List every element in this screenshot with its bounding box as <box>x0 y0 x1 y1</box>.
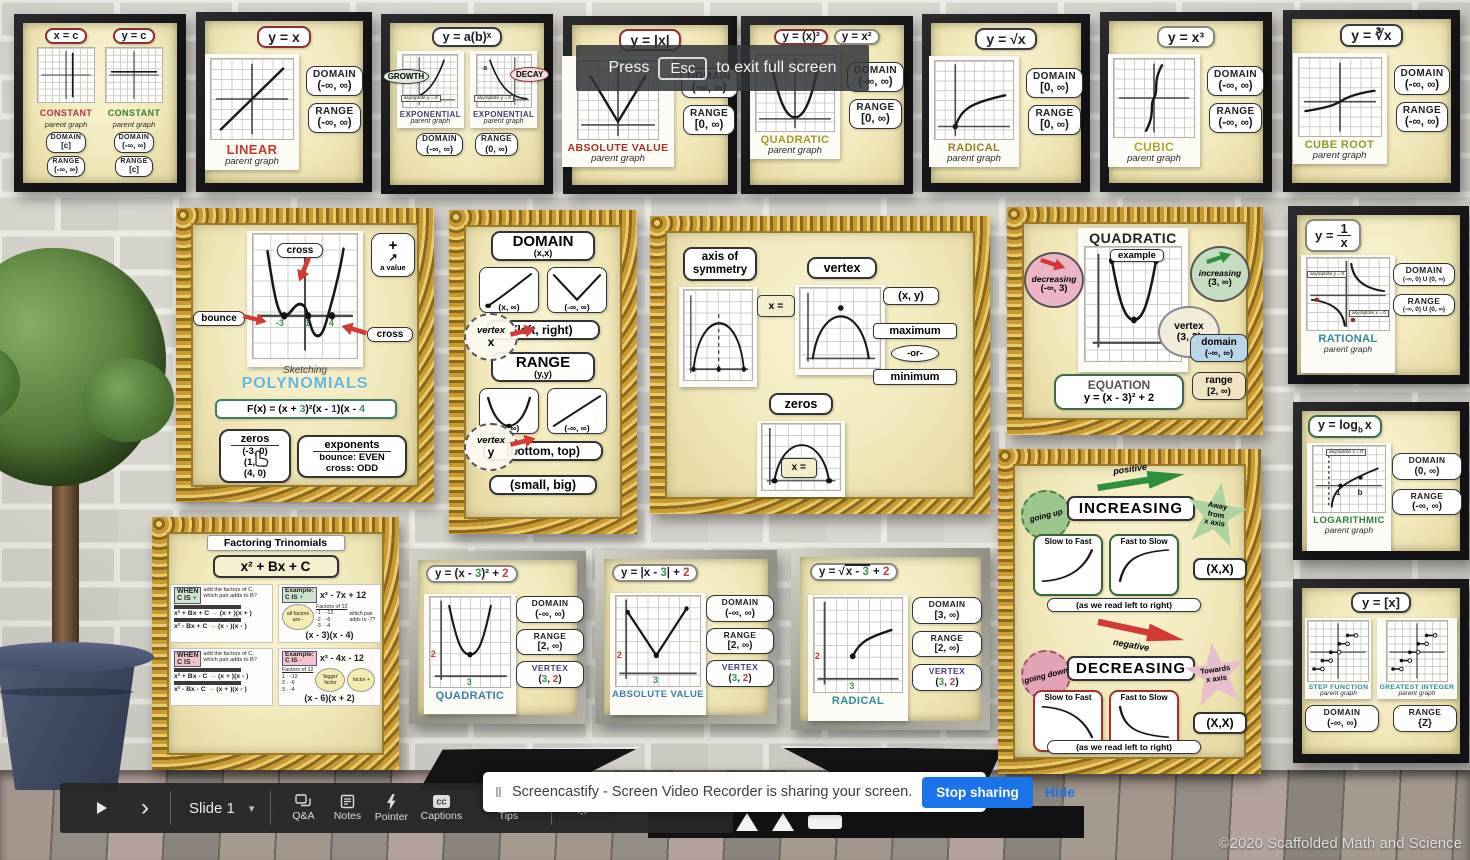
or-ellipse: -or- <box>891 345 939 362</box>
fullscreen-exit-toast: Press Esc to exit full screen <box>576 45 869 91</box>
eq-part: + <box>870 566 883 578</box>
eq-sub: b <box>1358 426 1363 435</box>
asymptote-tag: asymptote y = 0 <box>1307 271 1347 278</box>
mat: y = |x - 3| + 2 2 3 ABSOLUTE VALUE DOMAI… <box>604 559 768 715</box>
hand-cursor-icon <box>249 443 269 467</box>
star-text: Towardsx axis <box>1200 664 1232 685</box>
parent-graph-subtitle: parent graph <box>45 120 88 129</box>
vertex-x: x <box>488 336 495 348</box>
equation-card: y = logbx <box>1308 415 1382 438</box>
graph-svg <box>684 290 752 380</box>
copyright-text: ©2020 Scaffolded Math and Science <box>1150 835 1462 852</box>
domain-card: DOMAIN(-∞, 0) U (0, ∞) <box>1393 263 1455 286</box>
example-chip: Example:C IS - <box>282 651 317 667</box>
domain-card: DOMAIN(-∞, ∞) <box>306 66 363 96</box>
graph-svg <box>1299 58 1381 136</box>
range-mini-card: (-∞, ∞) <box>547 388 607 434</box>
polynomials-title: POLYNOMIALS <box>191 375 419 393</box>
factor-list: Factors of 121 · -122 · -63 · -4 <box>282 667 313 693</box>
equation-card: EQUATION y = (x - 3)² + 2 <box>1054 374 1184 410</box>
graph-svg <box>38 48 94 102</box>
parent-graph-subtitle: parent graph <box>947 153 1001 164</box>
dark-strip <box>174 668 241 672</box>
press-text: Press <box>609 59 650 77</box>
b-label: b <box>1358 488 1363 497</box>
graph-svg <box>814 598 902 692</box>
notes-button[interactable]: Notes <box>325 794 369 822</box>
y-mark: 2 <box>617 650 622 660</box>
decreasing-circle: decreasing (-∞, 3) <box>1024 252 1084 308</box>
transform-poster: 2 3 ABSOLUTE VALUE <box>610 593 706 715</box>
transform-poster: 2 3 RADICAL <box>808 595 908 721</box>
mat: y = 1 x asymptote y = 0 asymptote x = 0 … <box>1297 215 1460 375</box>
mat: y = logbx asymptote x = 0 1 b LOGARITHMI… <box>1302 411 1460 551</box>
frame-transform-radical: y = √x - 3 + 2 2 3 RADICAL DOMAIN[3, ∞) … <box>791 548 990 730</box>
plant-pot-band <box>0 688 134 696</box>
parent-graph-subtitle: parent graph <box>1325 525 1373 535</box>
asymptote-tag: asymptote y = 0 <box>474 95 514 102</box>
equation-card: x = c <box>45 28 88 44</box>
pointer-button[interactable]: Pointer <box>369 794 413 823</box>
increasing-circle: increasing (3, ∞) <box>1190 246 1250 302</box>
mat: x = c CONSTANT parent graph DOMAIN[c] RA… <box>23 23 177 183</box>
vertex-value-card: (x, y) <box>883 287 939 305</box>
graph-svg <box>106 48 162 102</box>
x-mark: 3 <box>849 681 854 691</box>
card-title: Fast to Slow <box>1111 693 1177 702</box>
plus-a-value-card: + ↗ a value <box>371 233 415 277</box>
domain-card: DOMAIN[c] <box>46 132 87 153</box>
sharing-message: Screencastify - Screen Video Recorder is… <box>512 784 912 800</box>
parent-graph-subtitle: parent graph <box>591 153 645 164</box>
mat: axis of symmetry x = vertex (x, y) maxim… <box>665 231 975 499</box>
linear-graph <box>210 58 294 140</box>
range-card: RANGE(-∞, ∞) <box>308 103 360 133</box>
virtual-math-classroom: { "labels": {"domain":"DOMAIN","range":"… <box>0 0 1470 860</box>
asymptote-tag: asymptote x = 0 <box>1349 310 1389 317</box>
dark-strip <box>174 618 241 622</box>
frame-polynomials: -3 1 4 bounce cross cross + ↗ a value Sk… <box>176 208 434 502</box>
equation-label: EQUATION <box>1056 378 1182 392</box>
range-sub: (y,y) <box>493 370 593 379</box>
domain-title-card: DOMAIN (x,x) <box>491 231 595 261</box>
pennant-triangle-icon <box>772 813 794 831</box>
poster-title: QUADRATIC <box>436 690 505 702</box>
esc-key: Esc <box>658 57 707 80</box>
qa-label: Q&A <box>292 810 314 822</box>
qa-button[interactable]: Q&A <box>281 794 325 822</box>
curve-svg <box>1114 546 1174 586</box>
cube-root-graph <box>1298 57 1382 137</box>
equation-card: y = x <box>257 26 311 48</box>
eq-part: y = |x - <box>621 567 660 579</box>
read-note: (as we read left to right) <box>1047 598 1201 612</box>
graph-svg <box>1387 621 1447 681</box>
range-card: range [2, ∞) <box>1192 372 1246 400</box>
decay-poster: a asymptote y = 0 DECAY EXPONENTIAL pare… <box>470 51 537 128</box>
equation-card: y = ∛x <box>1340 24 1402 47</box>
stop-sharing-button[interactable]: Stop sharing <box>922 777 1033 808</box>
frame-radical: y = √x RADICAL parent graph DOMAIN[0, ∞)… <box>922 14 1090 192</box>
card-title: Fast to Slow <box>1111 537 1177 546</box>
y-mark: 2 <box>815 651 820 661</box>
parent-graph-poster: CUBIC parent graph <box>1108 54 1200 167</box>
equation-card: y = a(b)ˣ <box>432 27 503 47</box>
xx-card: (X,X) <box>1193 712 1247 734</box>
graph-svg <box>800 288 880 368</box>
range-value: [2, ∞) <box>1193 387 1245 398</box>
xx-card: (X,X) <box>1193 558 1247 580</box>
axis-line2: symmetry <box>685 264 755 277</box>
mat: y = √x - 3 + 2 2 3 RADICAL DOMAIN[3, ∞) … <box>800 557 981 721</box>
example-tag: example <box>1110 249 1164 262</box>
when-c-positive-panel: WHENC IS + add the factors of C, which p… <box>170 584 273 643</box>
parent-graph-subtitle: parent graph <box>225 156 279 167</box>
vertex-card: vertex <box>807 257 877 279</box>
vertex-poster <box>795 285 885 375</box>
mat: -3 1 4 bounce cross cross + ↗ a value Sk… <box>191 223 419 487</box>
domain-card: DOMAIN(-∞, ∞) <box>1207 66 1264 96</box>
vertex-card: VERTEX(3, 2) <box>912 664 982 691</box>
parent-graph-title: LINEAR <box>227 142 278 157</box>
vertex-x-circle: vertex x <box>464 313 518 361</box>
example-chip: Example:C IS + <box>282 587 317 603</box>
x-mark: 3 <box>653 675 658 685</box>
qa-icon <box>295 794 312 809</box>
equation-card: y = |x - 3| + 2 <box>612 564 698 582</box>
green-arrow-icon <box>1205 248 1233 267</box>
rule-row: x² + Bx + C → (x + )(x + ) <box>174 610 269 617</box>
mat: Factoring Trinomials x² + Bx + C WHENC I… <box>167 532 384 755</box>
frame-quadratic-features: axis of symmetry x = vertex (x, y) maxim… <box>650 216 990 514</box>
exponents-header: exponents <box>313 439 391 452</box>
domain-title: DOMAIN <box>493 234 593 249</box>
trinomial-formula-card: x² + Bx + C <box>213 555 339 578</box>
bounce-value: EVEN <box>359 452 385 463</box>
radical-graph <box>934 60 1014 140</box>
equation-card: y = √x - 3 + 2 <box>810 563 898 581</box>
eq-part: 2 <box>683 567 689 579</box>
vertex-card: VERTEX(3, 2) <box>706 660 774 687</box>
play-icon <box>93 800 109 816</box>
all-negative-bubble: all factors are - <box>282 604 314 630</box>
axis-equation-card: x = <box>757 295 795 317</box>
parent-graph-poster: CUBE ROOT parent graph <box>1293 53 1387 164</box>
range-card: RANGE(0, ∞) <box>475 133 518 156</box>
parent-graph-title: CUBIC <box>1134 140 1174 154</box>
curve-svg <box>1038 546 1098 586</box>
axis-of-symmetry-card: axis of symmetry <box>683 247 757 281</box>
frame-factoring-trinomials: Factoring Trinomials x² + Bx + C WHENC I… <box>152 517 399 770</box>
parent-graph-subtitle: parent graph <box>484 118 524 125</box>
domain-card: DOMAIN(-∞, ∞) <box>1394 65 1451 95</box>
eq-part: )(x - <box>337 403 359 415</box>
example-eq: x² - 4x - 12 <box>320 653 364 663</box>
cross-label-top: cross <box>277 243 323 258</box>
zeros-graph: x = <box>761 423 841 491</box>
rule-row: x² - Bx - C → (x + )(x - ) <box>174 686 269 693</box>
frame-constant: x = c CONSTANT parent graph DOMAIN[c] RA… <box>14 14 186 192</box>
range-card: RANGE(-∞, ∞) <box>1396 102 1448 132</box>
card-title: Slow to Fast <box>1035 693 1101 702</box>
inc-slow-fast-card: Slow to Fast <box>1033 534 1103 596</box>
eq-part: | + <box>667 567 683 579</box>
mat: y = x³ CUBIC parent graph DOMAIN(-∞, ∞) … <box>1109 21 1263 183</box>
graph-svg <box>1313 446 1385 512</box>
frame-absolute-value: y = |x| ABSOLUTE VALUE parent graph DOMA… <box>563 16 737 194</box>
eq-part: 3 <box>862 566 868 578</box>
domain-card: DOMAIN(-∞, ∞) <box>706 595 774 622</box>
toolbar-divider <box>170 791 171 825</box>
constant-y-graph <box>105 47 163 103</box>
curve-svg <box>1038 702 1098 742</box>
small-big-card: (small, big) <box>489 475 597 495</box>
slide-selector-caret[interactable]: ▾ <box>243 802 261 815</box>
domain-card: domain (-∞, ∞) <box>1190 334 1248 362</box>
domain-range-col: DOMAIN(0, ∞) RANGE(-∞, ∞) <box>1392 453 1462 515</box>
axis-line1: axis of <box>685 251 755 264</box>
bigger-factor-bubble: 'bigger' factor <box>315 668 345 692</box>
info-col: DOMAIN(-∞, ∞) RANGE[2, ∞) VERTEX(3, 2) <box>706 595 774 687</box>
equation-card: y = 1 x <box>1305 219 1361 252</box>
maximum-card: maximum <box>873 323 957 339</box>
increasing-card: INCREASING <box>1067 496 1195 521</box>
curve-svg <box>1114 702 1174 742</box>
range-card: RANGE[0, ∞) <box>683 105 735 135</box>
range-title: RANGE <box>493 355 593 370</box>
eq-part: y = √ <box>819 566 845 578</box>
greatest-integer-graph <box>1386 620 1448 682</box>
drag-handle-icon[interactable]: ‖ <box>495 784 502 800</box>
eq-part: F(x) = (x + <box>247 403 300 415</box>
zeros-poster: x = <box>757 421 845 497</box>
domain-card: DOMAIN(-∞, ∞) <box>1305 705 1379 732</box>
factored-equation-card: F(x) = (x + 3)²(x - 1)(x - 4 <box>215 399 397 419</box>
range-card: RANGE[2, ∞) <box>912 631 982 658</box>
notes-label: Notes <box>334 810 361 822</box>
minimum-card: minimum <box>873 369 957 385</box>
slide-selector[interactable]: Slide 1 <box>181 800 243 817</box>
zero-label: -3 <box>276 318 284 328</box>
asymptote-tag: asymptote y = 0 <box>401 95 441 102</box>
frame-rational: y = 1 x asymptote y = 0 asymptote x = 0 … <box>1288 206 1469 384</box>
rule-text: add the factors of C, which pair adds to… <box>203 651 269 663</box>
rational-graph: asymptote y = 0 asymptote x = 0 <box>1306 257 1390 331</box>
poster-title: QUADRATIC <box>1089 230 1176 246</box>
range-card: RANGE(-∞, ∞) <box>47 156 84 177</box>
graph-svg <box>935 61 1013 139</box>
parent-graph-subtitle: parent graph <box>1320 690 1357 697</box>
pennant-block-icon <box>808 815 842 829</box>
range-card: RANGE[2, ∞) <box>706 628 774 655</box>
frame-exponential: y = a(b)ˣ ab asymptote y = 0 GROWTH EXPO… <box>381 14 553 194</box>
mat: y = a(b)ˣ ab asymptote y = 0 GROWTH EXPO… <box>390 23 544 185</box>
info-col: DOMAIN[3, ∞) RANGE[2, ∞) VERTEX(3, 2) <box>912 597 982 691</box>
logarithmic-poster: asymptote x = 0 1 b LOGARITHMIC parent g… <box>1307 443 1391 551</box>
a-label: a <box>483 65 487 72</box>
graph-svg <box>211 59 293 139</box>
vertex-card: VERTEX(3, 2) <box>516 661 584 688</box>
mat: y = x LINEAR parent graph DOMAIN(-∞, ∞) … <box>205 21 363 183</box>
next-slide-button[interactable]: › <box>130 796 160 820</box>
when-c-negative-panel: WHENC IS - add the factors of C, which p… <box>170 648 273 707</box>
constant-x-graph <box>37 47 95 103</box>
range-card: RANGE(-∞, 0) U (0, ∞) <box>1393 294 1455 317</box>
factoring-grid: WHENC IS + add the factors of C, which p… <box>170 584 381 706</box>
domain-card: DOMAIN(-∞, ∞) <box>114 132 155 153</box>
transform-poster: 2 3 QUADRATIC <box>424 594 516 714</box>
hide-banner-link[interactable]: Hide <box>1045 784 1075 800</box>
parent-graph-subtitle: parent graph <box>1127 153 1181 164</box>
decay-bubble: DECAY <box>510 67 549 82</box>
frame-domain-range: DOMAIN (x,x) (x, ∞) (-∞, ∞) (left, right… <box>449 210 637 534</box>
plus-sign: + <box>389 238 398 253</box>
positive-label: positive <box>1112 462 1147 477</box>
zeros-equation-card: x = <box>781 458 817 478</box>
cubic-graph <box>1113 58 1195 138</box>
inc-fast-slow-card: Fast to Slow <box>1109 534 1179 596</box>
growth-poster: ab asymptote y = 0 GROWTH EXPONENTIAL pa… <box>397 51 464 128</box>
mat: y = ∛x CUBE ROOT parent graph DOMAIN(-∞,… <box>1292 19 1451 183</box>
step-graph <box>1307 620 1369 682</box>
graph-svg <box>1308 621 1368 681</box>
answer: (x - 3)(x - 4) <box>282 630 377 640</box>
vertex-graph <box>799 287 881 369</box>
frame-step-function: y = [x] STEP FUNCTION parent graph GREAT… <box>1293 579 1469 763</box>
example-c-positive-panel: Example:C IS + x² - 7x + 12 all factors … <box>278 584 381 643</box>
range-card: RANGE[0, ∞) <box>849 99 901 129</box>
pointer-label: Pointer <box>375 811 408 823</box>
mini-value: (x, ∞) <box>480 302 538 312</box>
svg-text:CC: CC <box>436 800 446 807</box>
eq-part: y = (x - <box>435 568 475 580</box>
frame-transform-quadratic: y = (x - 3)² + 2 2 3 QUADRATIC DOMAIN(-∞… <box>409 551 586 724</box>
which-pair: which pair adds to -7? <box>349 611 375 623</box>
mat: y = (x - 3)² + 2 2 3 QUADRATIC DOMAIN(-∞… <box>418 560 577 715</box>
zero-value: (4, 0) <box>221 468 289 479</box>
equation-card: y = x³ <box>1157 26 1215 48</box>
graph-svg <box>762 424 840 490</box>
equation-card: y = (x)² <box>774 29 827 45</box>
frame-cubic: y = x³ CUBIC parent graph DOMAIN(-∞, ∞) … <box>1100 12 1272 192</box>
domain-word: domain <box>1191 337 1247 349</box>
parent-graph-poster: RADICAL parent graph <box>929 56 1019 167</box>
denominator: x <box>1340 236 1347 249</box>
parent-graph-poster: LINEAR parent graph <box>205 54 299 170</box>
equation-card: y = (x - 3)² + 2 <box>426 565 518 583</box>
parent-graph-subtitle: parent graph <box>113 120 156 129</box>
rule-text: add the factors of C, which pair adds to… <box>203 587 269 599</box>
axis-graph <box>683 289 753 381</box>
when-chip: WHENC IS - <box>174 651 201 668</box>
frame-linear: y = x LINEAR parent graph DOMAIN(-∞, ∞) … <box>196 12 372 192</box>
screen-sharing-banner: ‖ Screencastify - Screen Video Recorder … <box>483 772 986 812</box>
range-word: range <box>1193 375 1245 387</box>
asymptote-tag: asymptote x = 0 <box>1326 449 1366 456</box>
eq-part: )²(x - <box>305 403 331 415</box>
cross-key: cross: <box>326 463 355 474</box>
parent-graph-title: CONSTANT <box>108 108 161 118</box>
domain-mini-card: (x, ∞) <box>479 267 539 313</box>
rule-row: x² - Bx + C → (x - )(x - ) <box>174 623 269 630</box>
equation-card: y = [x] <box>1351 592 1411 613</box>
red-arrow-icon <box>1039 254 1067 273</box>
eq-part: )² + <box>481 568 502 580</box>
domain-card: DOMAIN[0, ∞) <box>1026 68 1083 98</box>
domain-card: DOMAIN[3, ∞) <box>912 597 982 624</box>
card-title: Slow to Fast <box>1035 537 1101 546</box>
bounce-label: bounce <box>193 311 245 326</box>
mini-value: (-∞, ∞) <box>548 423 606 433</box>
poster-title: ABSOLUTE VALUE <box>612 689 704 700</box>
exit-text: to exit full screen <box>716 59 836 77</box>
equation-card: y = √x <box>975 28 1036 50</box>
parent-graph-subtitle: parent graph <box>768 145 822 156</box>
play-button[interactable] <box>72 800 130 816</box>
numerator: 1 <box>1337 222 1350 236</box>
domain-card: DOMAIN(-∞, ∞) <box>416 133 463 156</box>
topiary-trunk <box>52 458 79 666</box>
domain-value: (-∞, ∞) <box>1191 349 1247 360</box>
growth-bubble: GROWTH <box>383 69 429 84</box>
read-note: (as we read left to right) <box>1047 740 1201 754</box>
range-card: RANGE[c] <box>115 156 152 177</box>
factor-plus-bubble: factor + <box>347 668 375 692</box>
eq-part: y = <box>1315 228 1333 243</box>
eq-part: x - <box>846 566 863 578</box>
captions-icon: CC <box>432 794 451 809</box>
captions-label: Captions <box>421 810 462 822</box>
equation-value: y = (x - 3)² + 2 <box>1056 392 1182 405</box>
decreasing-card: DECREASING <box>1067 656 1195 681</box>
eq-part: 4 <box>359 403 365 415</box>
captions-button[interactable]: CC Captions <box>413 794 469 822</box>
parent-graph-subtitle: parent graph <box>1324 344 1372 354</box>
eq-part: 2 <box>502 568 508 580</box>
eq-part: x <box>1365 418 1372 432</box>
one-label: 1 <box>1336 488 1340 497</box>
pennant-triangle-icon <box>736 813 758 831</box>
dark-strip <box>174 681 241 685</box>
zero-label: 1 <box>305 318 310 328</box>
graph-svg <box>1114 59 1194 137</box>
frame-transform-absolute: y = |x - 3| + 2 2 3 ABSOLUTE VALUE DOMAI… <box>595 550 777 724</box>
vertex-y: y <box>488 446 495 458</box>
mat: y = √x RADICAL parent graph DOMAIN[0, ∞)… <box>931 23 1081 183</box>
decreasing-interval: (-∞, 3) <box>1041 284 1068 294</box>
parent-graph-subtitle: parent graph <box>1313 150 1367 161</box>
pointer-icon <box>385 794 398 810</box>
cross-label-right: cross <box>367 327 413 342</box>
notes-icon <box>340 794 355 809</box>
a-value-label: a value <box>380 264 405 272</box>
cross-value: ODD <box>357 463 378 474</box>
domain-range-col: DOMAIN(-∞, 0) U (0, ∞) RANGE(-∞, 0) U (0… <box>1393 263 1455 316</box>
vertex-y-circle: vertex y <box>464 423 518 471</box>
greatest-integer-poster: GREATEST INTEGER parent graph <box>1377 618 1456 699</box>
mat: y = [x] STEP FUNCTION parent graph GREAT… <box>1302 588 1460 754</box>
example-eq: x² - 7x + 12 <box>320 590 366 600</box>
zeros-card: zeros <box>769 393 833 415</box>
mini-value: (-∞, ∞) <box>548 302 606 312</box>
parent-graph-subtitle: parent graph <box>1399 690 1436 697</box>
zero-label: 4 <box>329 318 334 328</box>
bounce-key: bounce: <box>319 452 356 463</box>
equation-card: y = c <box>113 28 156 44</box>
frame-increasing-decreasing: positive going up INCREASING Awayfromx a… <box>998 449 1261 774</box>
mat: DOMAIN (x,x) (x, ∞) (-∞, ∞) (left, right… <box>464 225 622 519</box>
mat: QUADRATIC example decreasing (-∞, 3) inc… <box>1022 222 1248 420</box>
